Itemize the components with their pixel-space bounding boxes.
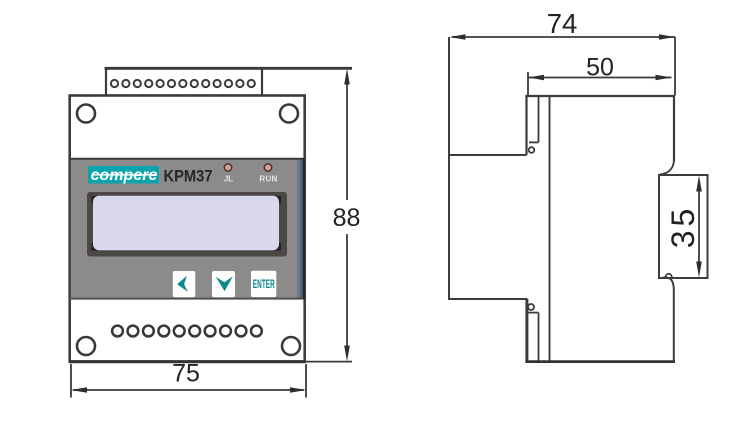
- svg-text:compere: compere: [91, 167, 158, 184]
- svg-text:35: 35: [665, 205, 701, 249]
- svg-text:50: 50: [586, 54, 614, 82]
- svg-text:88: 88: [333, 204, 361, 232]
- svg-text:74: 74: [547, 8, 578, 39]
- svg-text:75: 75: [172, 360, 200, 388]
- svg-text:ENTER: ENTER: [253, 277, 275, 291]
- svg-text:KPM37: KPM37: [164, 168, 213, 186]
- svg-text:RUN: RUN: [259, 175, 277, 184]
- svg-text:JL: JL: [224, 175, 233, 184]
